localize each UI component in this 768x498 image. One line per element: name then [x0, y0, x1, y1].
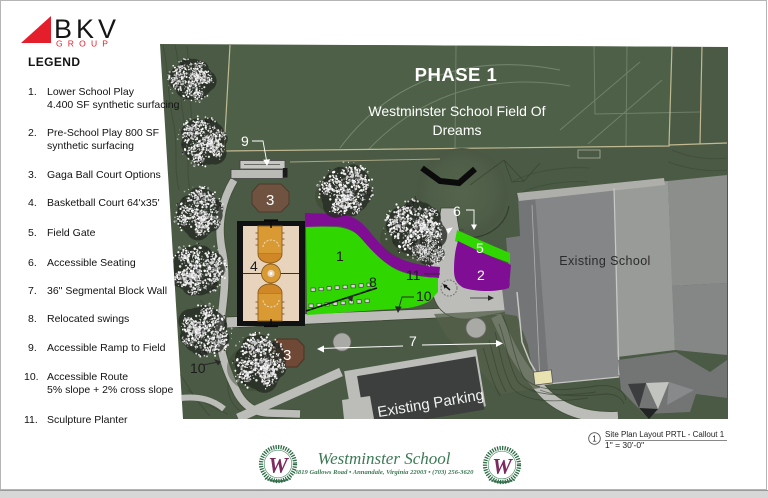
svg-text:4: 4 — [250, 258, 258, 274]
svg-text:6: 6 — [453, 203, 461, 219]
svg-text:1: 1 — [592, 435, 597, 444]
svg-text:11: 11 — [406, 267, 421, 283]
svg-text:Westminster School Field Of: Westminster School Field Of — [368, 103, 545, 119]
svg-text:Existing School: Existing School — [559, 254, 650, 268]
svg-text:8: 8 — [369, 274, 377, 290]
svg-text:9: 9 — [241, 133, 249, 149]
svg-text:2: 2 — [477, 267, 485, 283]
svg-text:3: 3 — [266, 192, 274, 209]
svg-text:7: 7 — [409, 333, 417, 349]
svg-text:5: 5 — [476, 240, 484, 256]
svg-text:W: W — [268, 453, 289, 478]
svg-text:1: 1 — [336, 248, 344, 264]
svg-text:PHASE 1: PHASE 1 — [415, 64, 498, 85]
svg-text:3: 3 — [283, 347, 291, 364]
svg-text:W: W — [492, 454, 513, 479]
svg-text:10: 10 — [416, 288, 432, 304]
svg-text:10: 10 — [190, 360, 206, 376]
svg-text:Dreams: Dreams — [432, 122, 481, 138]
